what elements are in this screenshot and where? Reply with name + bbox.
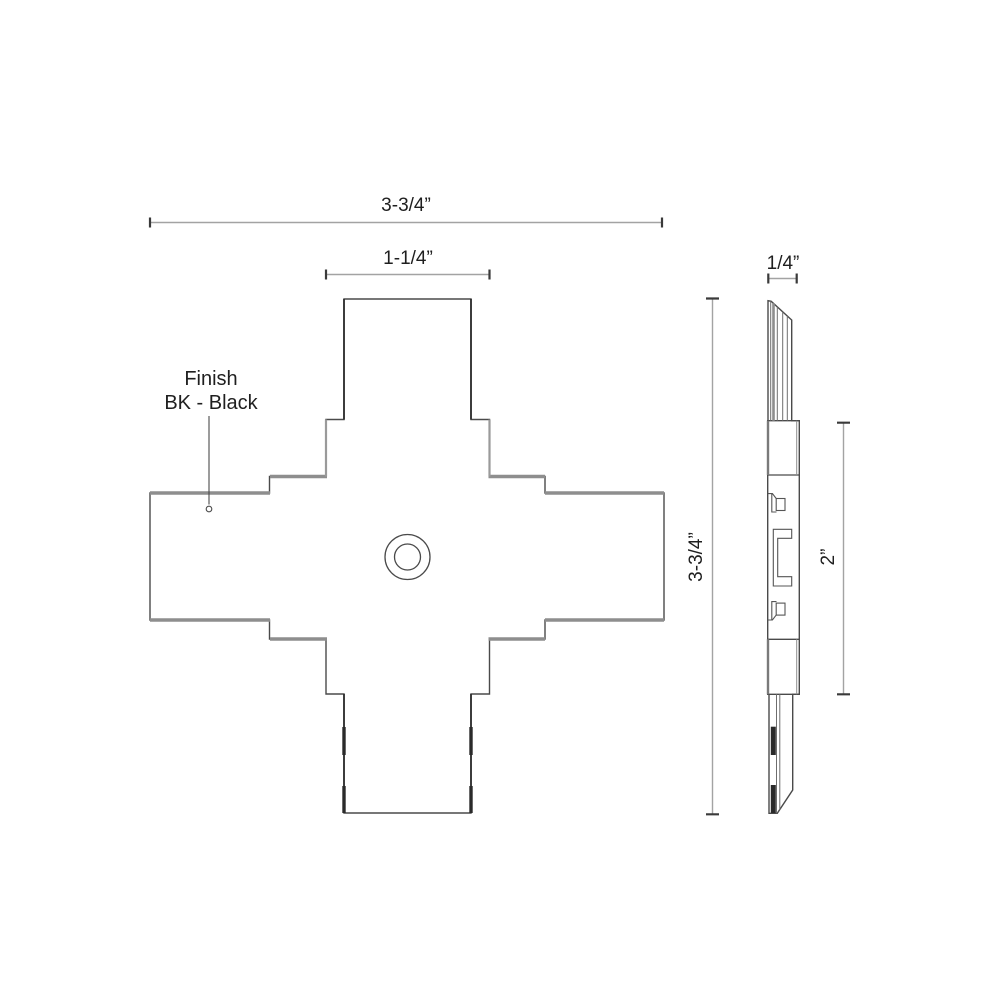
profile-clip-top <box>768 494 785 512</box>
cross-step-edges <box>326 420 490 477</box>
dim-arm-width-label: 1-1/4” <box>383 248 433 269</box>
dim-overall-height-label: 3-3/4” <box>686 532 707 582</box>
profile-block-separators <box>768 421 800 695</box>
center-hole-outer <box>385 535 430 580</box>
dim-overall-width: 3-3/4” <box>150 195 662 228</box>
dim-thickness: 1/4” <box>767 253 800 284</box>
front-view: Finish BK - Black 3-3/4” 1-1/4” <box>150 195 664 813</box>
profile-center-channel <box>773 529 791 586</box>
profile-contact-mark-2 <box>771 785 776 813</box>
profile-bottom-strip-lines <box>777 694 780 813</box>
cross-thick-edges <box>150 477 664 640</box>
dim-overall-height: 3-3/4” <box>686 299 719 815</box>
finish-note-line1: Finish <box>184 368 237 390</box>
dim-bracket-span-label: 2” <box>818 549 839 566</box>
profile-contact-mark-1 <box>771 727 776 755</box>
dim-bracket-span: 2” <box>818 423 850 695</box>
center-hole-inner <box>395 544 421 570</box>
finish-note-line2: BK - Black <box>164 392 258 414</box>
dim-thickness-label: 1/4” <box>767 253 800 274</box>
technical-drawing-canvas: Finish BK - Black 3-3/4” 1-1/4” <box>0 0 1000 1000</box>
drawing-svg: Finish BK - Black 3-3/4” 1-1/4” <box>0 0 1000 1000</box>
finish-leader-dot <box>206 506 212 512</box>
finish-leader <box>206 416 212 512</box>
cross-arm-edges <box>344 299 471 813</box>
side-view: 1/4” 3-3/4” 2” <box>686 253 850 814</box>
bottom-arm-contact-marks <box>344 727 471 813</box>
dim-overall-width-label: 3-3/4” <box>381 195 431 216</box>
dim-arm-width: 1-1/4” <box>326 248 490 280</box>
profile-clip-bottom <box>768 602 785 620</box>
